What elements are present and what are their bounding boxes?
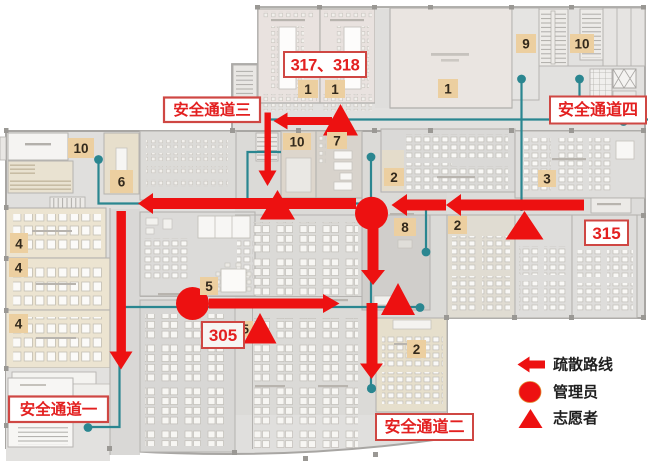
svg-text:4: 4 — [15, 237, 23, 252]
svg-text:10: 10 — [574, 37, 589, 52]
svg-text:安全通道二: 安全通道二 — [384, 417, 464, 436]
svg-text:疏散路线: 疏散路线 — [553, 356, 613, 374]
svg-text:3: 3 — [543, 172, 551, 187]
svg-text:10: 10 — [289, 135, 304, 150]
svg-text:315: 315 — [592, 224, 620, 243]
svg-text:2: 2 — [413, 342, 421, 357]
svg-text:安全通道三: 安全通道三 — [173, 100, 251, 119]
svg-text:9: 9 — [522, 37, 530, 52]
svg-text:10: 10 — [73, 141, 88, 156]
svg-text:5: 5 — [205, 279, 213, 294]
svg-text:7: 7 — [333, 134, 341, 149]
svg-text:管理员: 管理员 — [553, 383, 598, 401]
svg-text:安全通道四: 安全通道四 — [558, 100, 638, 119]
svg-text:1: 1 — [331, 82, 339, 97]
svg-text:4: 4 — [15, 261, 23, 276]
svg-text:2: 2 — [390, 170, 398, 185]
svg-text:1: 1 — [304, 82, 312, 97]
svg-text:安全通道一: 安全通道一 — [20, 400, 98, 419]
svg-text:志愿者: 志愿者 — [553, 409, 598, 427]
svg-text:8: 8 — [401, 220, 409, 235]
svg-text:305: 305 — [209, 326, 237, 345]
svg-text:317、318: 317、318 — [291, 57, 360, 75]
svg-text:6: 6 — [118, 175, 126, 190]
svg-text:2: 2 — [454, 218, 462, 233]
svg-text:4: 4 — [15, 317, 23, 332]
svg-text:1: 1 — [444, 82, 452, 97]
